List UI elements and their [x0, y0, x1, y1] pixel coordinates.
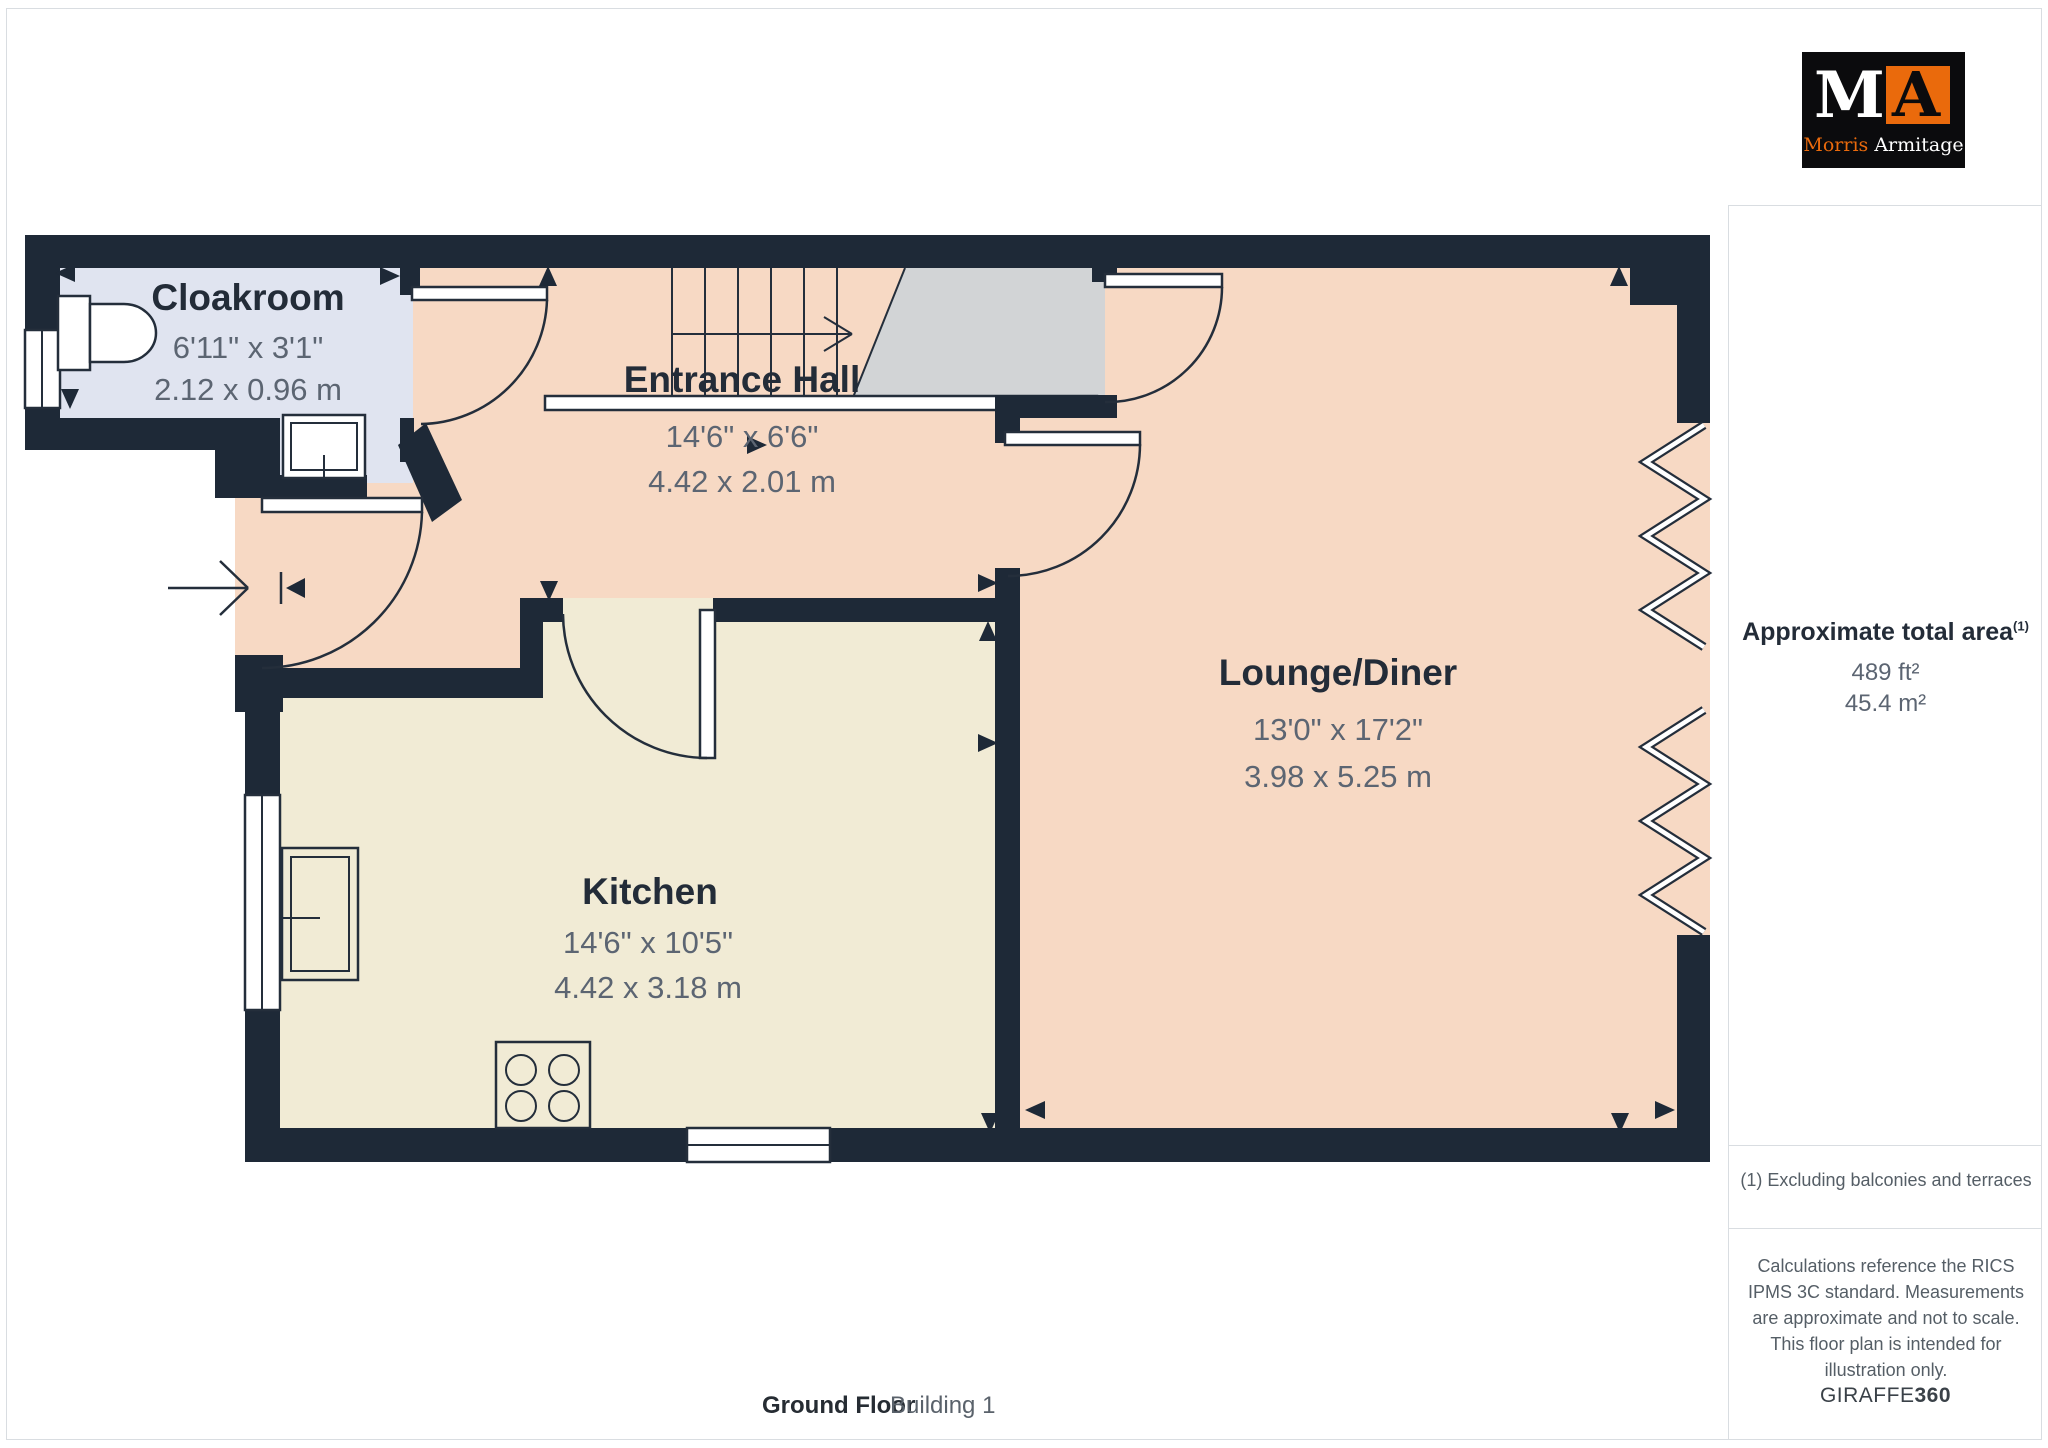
sidebar-top-divider: [1729, 205, 2042, 206]
entrance-hall-metric: 4.42 x 2.01 m: [648, 464, 836, 499]
kitchen-label: Kitchen 14'6" x 10'5" 4.42 x 3.18 m: [554, 871, 742, 1005]
sidebar-divider: [1728, 205, 1729, 1440]
cloakroom-metric: 2.12 x 0.96 m: [154, 372, 342, 407]
floorplan-drawing: Cloakroom 6'11" x 3'1" 2.12 x 0.96 m Ent…: [0, 0, 2048, 1448]
total-area-title: Approximate total area(1): [1729, 618, 2042, 647]
brand-name: GIRAFFE: [1820, 1384, 1915, 1407]
lounge-diner-name: Lounge/Diner: [1219, 652, 1457, 693]
disclaimer-text: Calculations reference the RICS IPMS 3C …: [1742, 1253, 2030, 1383]
kitchen-metric: 4.42 x 3.18 m: [554, 970, 742, 1005]
cloakroom-basin: [283, 415, 365, 478]
building-label: Building 1: [890, 1392, 995, 1420]
cloakroom-imperial: 6'11" x 3'1": [173, 330, 323, 365]
cloakroom-name: Cloakroom: [151, 277, 344, 318]
kitchen-imperial: 14'6" x 10'5": [563, 925, 733, 960]
kitchen-rear-window: [687, 1128, 830, 1162]
brand-suffix: 360: [1914, 1384, 1951, 1407]
sidebar-disclaimer-divider: [1729, 1228, 2042, 1229]
kitchen-side-window: [245, 795, 280, 1010]
kitchen-sink-unit: [282, 848, 358, 980]
logo-caption: Morris Armitage: [1802, 134, 1965, 156]
total-area-imperial: 489 ft²: [1729, 657, 2042, 688]
cloakroom-window: [25, 330, 60, 408]
sidebar-footnote-divider: [1729, 1145, 2042, 1146]
floorplan-page: Cloakroom 6'11" x 3'1" 2.12 x 0.96 m Ent…: [0, 0, 2048, 1448]
cloakroom-label: Cloakroom 6'11" x 3'1" 2.12 x 0.96 m: [151, 277, 344, 407]
agency-logo: M A Morris Armitage: [1802, 52, 1965, 168]
area-footnote: (1) Excluding balconies and terraces: [1740, 1170, 2032, 1191]
lounge-diner-imperial: 13'0" x 17'2": [1253, 712, 1423, 747]
entrance-hall-name: Entrance Hall: [624, 359, 860, 400]
logo-monogram-m: M: [1814, 58, 1885, 133]
lounge-diner-label: Lounge/Diner 13'0" x 17'2" 3.98 x 5.25 m: [1219, 652, 1457, 794]
logo-monogram-a: A: [1892, 58, 1940, 131]
logo-name-second: Armitage: [1874, 134, 1963, 156]
kitchen-name: Kitchen: [582, 871, 718, 912]
hob: [496, 1042, 590, 1128]
logo-monogram-a-box: A: [1886, 66, 1950, 124]
entrance-hall-imperial: 14'6" x 6'6": [666, 419, 819, 454]
total-area-metric: 45.4 m²: [1729, 688, 2042, 719]
logo-name-first: Morris: [1803, 134, 1868, 156]
total-area-block: Approximate total area(1) 489 ft² 45.4 m…: [1729, 618, 2042, 719]
lounge-diner-metric: 3.98 x 5.25 m: [1244, 759, 1432, 794]
giraffe360-brand: GIRAFFE360: [1729, 1384, 2042, 1408]
toilet: [58, 296, 156, 370]
area-footnote-marker: (1): [2013, 619, 2029, 634]
